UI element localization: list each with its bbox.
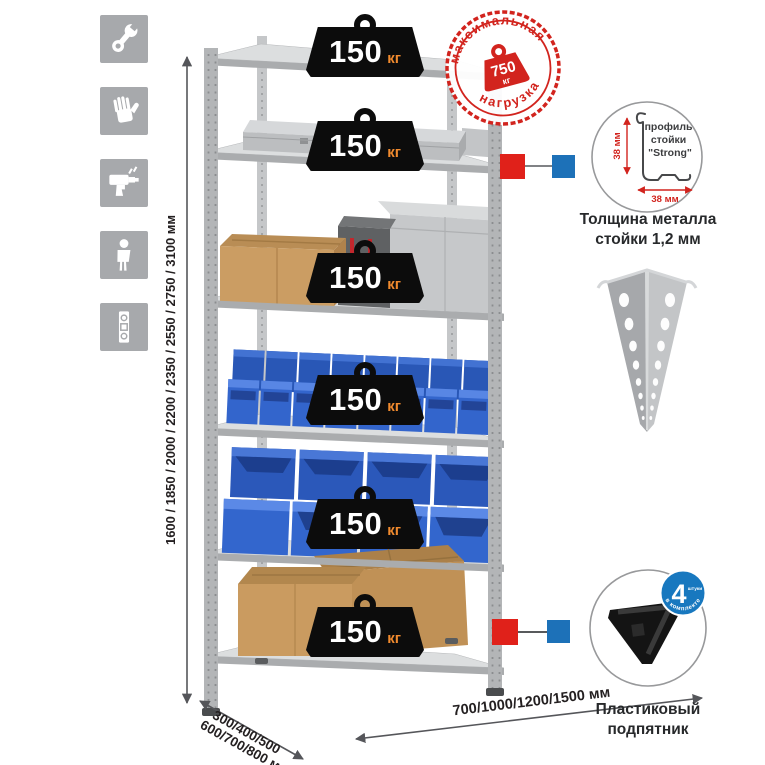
drill-icon [100, 159, 148, 207]
level-icon [100, 303, 148, 351]
height-dimension-label: 1600 / 1850 / 2000 / 2200 / 2350 / 2550 … [163, 215, 178, 545]
badge-qty-word: штуки [688, 587, 703, 592]
plastic-foot-detail: 4 штуки в комплекте [586, 566, 710, 695]
load-unit: кг [387, 630, 401, 647]
shelf-load-badge: 150 кг [306, 14, 424, 77]
profile-dim-vertical: 38 мм [612, 132, 623, 159]
angle-post-image [588, 262, 706, 447]
shelving-infographic: 1600 / 1850 / 2000 / 2200 / 2350 / 2550 … [0, 0, 765, 765]
person-icon [100, 231, 148, 279]
weight-body: 150 кг [306, 499, 424, 549]
quantity-badge: 4 штуки в комплекте [661, 571, 706, 616]
shelf-load-badge: 150 кг [306, 240, 424, 303]
profile-label: профиль стойки "Strong" [645, 121, 696, 159]
shelf-load-badge: 150 кг [306, 594, 424, 657]
foot-callout-connector [492, 619, 570, 645]
load-unit: кг [387, 50, 401, 67]
load-value: 150 [329, 382, 382, 418]
load-unit: кг [387, 144, 401, 161]
wrench-icon [100, 15, 148, 63]
weight-body: 150 кг [306, 375, 424, 425]
height-dimension: 1600 / 1850 / 2000 / 2200 / 2350 / 2550 … [163, 57, 187, 703]
foot-caption: Пластиковый подпятник [570, 700, 726, 739]
blue-marker-square [547, 620, 570, 643]
weight-body: 150 кг [306, 121, 424, 171]
load-value: 150 [329, 506, 382, 542]
red-marker-square [500, 154, 525, 179]
profile-caption-line2: стойки 1,2 мм [566, 230, 730, 250]
load-value: 150 [329, 34, 382, 70]
weight-body: 150 кг [306, 253, 424, 303]
load-value: 150 [329, 260, 382, 296]
depth-dimension-label: 300/400/500 600/700/800 мм [198, 704, 299, 765]
profile-caption: Толщина металла стойки 1,2 мм [566, 210, 730, 249]
gloves-icon [100, 87, 148, 135]
weight-body: 150 кг [306, 607, 424, 657]
load-unit: кг [387, 398, 401, 415]
profile-callout-connector [500, 154, 575, 179]
foot-caption-line1: Пластиковый [570, 700, 726, 720]
shelf-load-badge: 150 кг [306, 486, 424, 549]
shelf-load-badge: 150 кг [306, 362, 424, 425]
post-profile-detail: 38 мм 38 мм профиль стойки "Strong" [590, 100, 704, 219]
profile-caption-line1: Толщина металла [566, 210, 730, 230]
blue-marker-square [552, 155, 575, 178]
max-load-stamp: максимальная нагрузка 750 кг [441, 6, 565, 135]
shelf-load-badge: 150 кг [306, 108, 424, 171]
load-unit: кг [387, 276, 401, 293]
load-value: 150 [329, 128, 382, 164]
red-marker-square [492, 619, 518, 645]
load-value: 150 [329, 614, 382, 650]
load-unit: кг [387, 522, 401, 539]
weight-body: 150 кг [306, 27, 424, 77]
profile-dim-horizontal: 38 мм [651, 194, 678, 205]
foot-caption-line2: подпятник [570, 720, 726, 740]
